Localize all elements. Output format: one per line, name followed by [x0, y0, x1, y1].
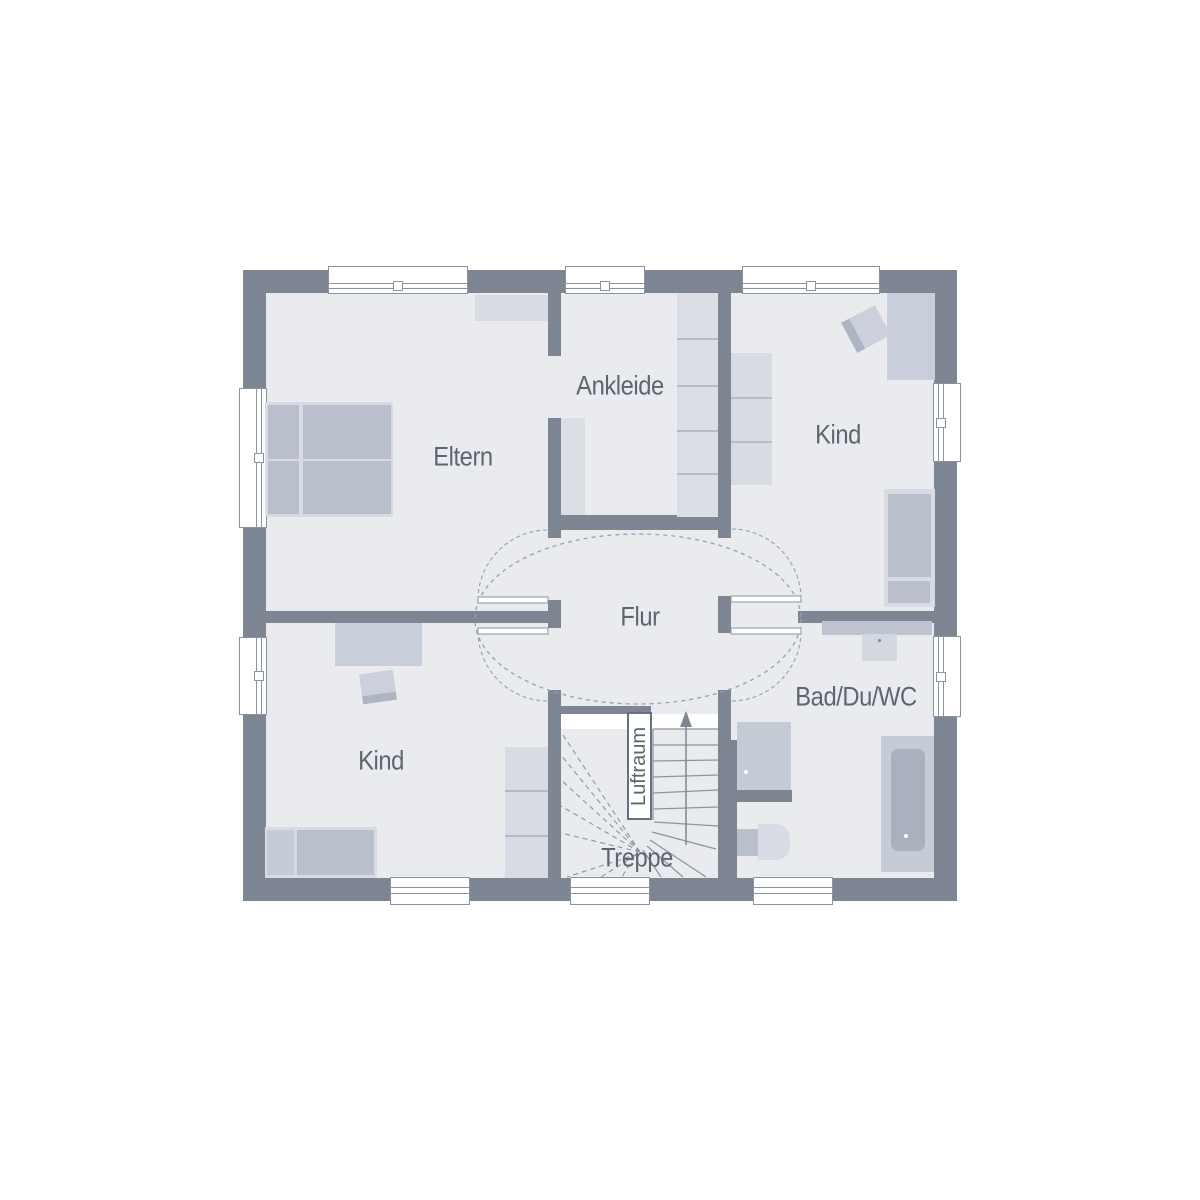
floor-plan: Luftraum Eltern Ankleide Kind Flur Kind …: [0, 0, 1200, 1200]
wall-jamb-east: [718, 596, 731, 633]
window-bottom-treppe: [570, 877, 650, 905]
wardrobe: [677, 293, 718, 517]
shower: [737, 722, 791, 790]
room-label-kind-sw: Kind: [358, 746, 404, 777]
room-label-flur: Flur: [620, 602, 659, 633]
bed-mattress: [297, 830, 374, 875]
bed-pillow: [888, 581, 930, 603]
wardrobe: [561, 418, 585, 515]
luftraum-void: Luftraum: [627, 712, 652, 820]
window-right-kind: [933, 383, 961, 462]
window-top-eltern: [328, 266, 468, 294]
window-right-bad: [933, 636, 961, 717]
room-label-kind-ne: Kind: [815, 420, 861, 451]
wardrobe: [505, 747, 548, 878]
desk: [887, 293, 935, 380]
bed-mattress: [888, 494, 931, 577]
wall-eltern-kind-divider: [266, 611, 548, 623]
wardrobe: [731, 353, 772, 485]
window-left-eltern: [239, 388, 267, 528]
toilet-bowl: [758, 824, 790, 860]
window-bottom-kind: [390, 877, 470, 905]
room-label-ankleide: Ankleide: [576, 371, 664, 402]
window-top-ankleide: [565, 266, 645, 294]
window-left-kind: [239, 637, 267, 715]
shower-drain: [744, 770, 748, 774]
wall-ankleide-west-upper: [548, 293, 561, 356]
wall-treppe-east: [718, 740, 737, 878]
wall-ankleide-east: [718, 293, 731, 538]
bed-pillow: [267, 830, 294, 875]
dresser: [475, 295, 548, 321]
desk: [335, 623, 422, 666]
bed-pillow: [268, 461, 299, 514]
room-label-eltern: Eltern: [433, 442, 492, 473]
wall-jamb-west: [548, 600, 561, 628]
bed-mattress: [303, 461, 391, 514]
chair: [359, 670, 397, 704]
vanity-counter: [822, 621, 932, 635]
window-bottom-bad: [753, 877, 833, 905]
room-label-treppe: Treppe: [601, 843, 673, 874]
bathtub-basin: [891, 749, 925, 851]
outer-wall-left: [243, 270, 266, 901]
window-top-kind: [742, 266, 880, 294]
wall-stub-east: [718, 690, 731, 740]
room-label-luftraum: Luftraum: [628, 727, 651, 806]
wall-treppe-west: [548, 690, 561, 878]
toilet-tank: [737, 829, 758, 856]
bathtub-drain: [904, 834, 908, 838]
basin-drain: [878, 639, 881, 642]
wall-ankleide-south: [548, 515, 731, 530]
wall-shower-stub: [737, 790, 792, 802]
bed-mattress: [303, 405, 391, 459]
outer-wall-right: [934, 270, 957, 901]
bed-pillow: [268, 405, 299, 459]
room-label-bad: Bad/Du/WC: [795, 682, 916, 713]
